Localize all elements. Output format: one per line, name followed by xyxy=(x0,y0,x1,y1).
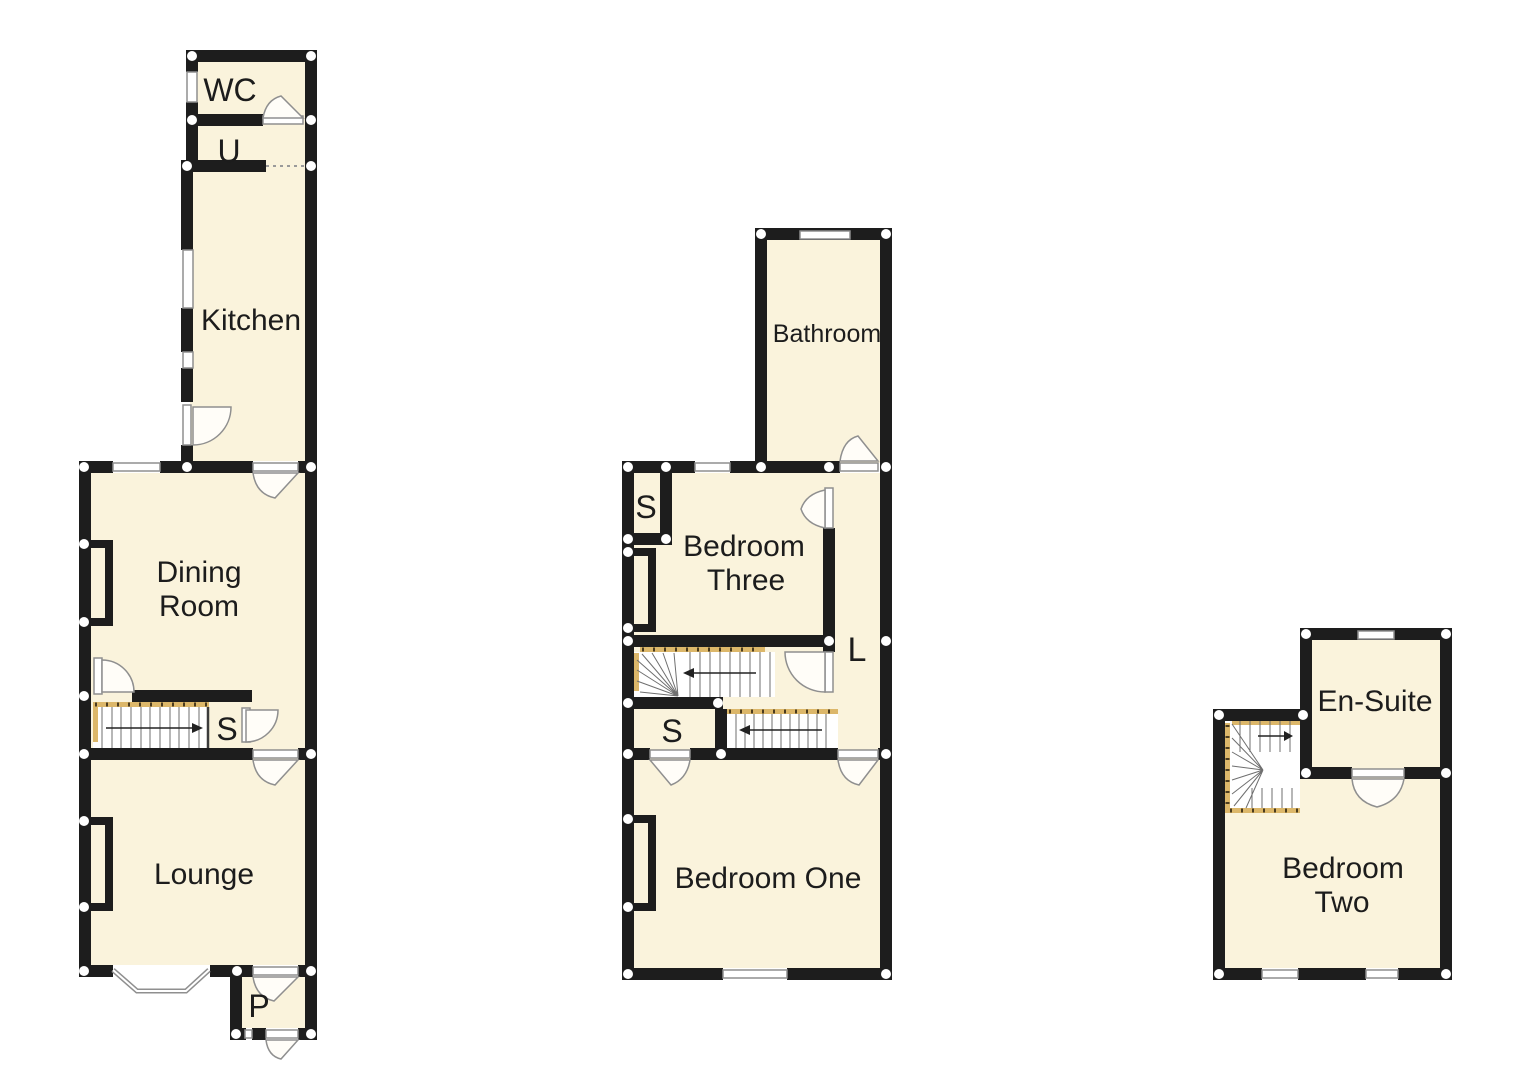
door-leaf xyxy=(253,967,298,975)
wall xyxy=(880,228,892,980)
wall xyxy=(186,114,263,126)
junction-dot xyxy=(756,462,766,472)
junction-dot xyxy=(232,966,242,976)
wall xyxy=(622,968,723,980)
bathroom-floor xyxy=(767,240,880,463)
room-label-dining-2: Room xyxy=(159,590,239,623)
first-floor-plan: Bathroom S Bedroom Three L S Bedroom One xyxy=(622,228,892,980)
window xyxy=(723,970,787,978)
door-leaf xyxy=(266,1030,298,1038)
window xyxy=(183,250,193,308)
wall xyxy=(181,308,193,352)
junction-dot xyxy=(79,966,89,976)
chimney-breast xyxy=(91,903,113,911)
door-leaf xyxy=(94,658,102,694)
junction-dot xyxy=(306,749,316,759)
chimney-breast xyxy=(634,624,656,632)
junction-dot xyxy=(1301,629,1311,639)
door-leaf xyxy=(183,405,191,445)
junction-dot xyxy=(79,462,89,472)
wall xyxy=(823,528,835,635)
wall xyxy=(305,50,317,1040)
door-leaf xyxy=(838,750,878,758)
door-swing-front xyxy=(266,1040,298,1059)
room-label-s-ground: S xyxy=(216,711,237,747)
window xyxy=(245,1030,252,1038)
ground-floor-plan: WC U Kitchen Dining Room S Lounge P xyxy=(79,50,317,1059)
chimney-breast xyxy=(648,815,656,911)
chimney-breast xyxy=(91,618,113,626)
junction-dot xyxy=(1298,710,1308,720)
wall xyxy=(690,748,838,760)
junction-dot xyxy=(881,636,891,646)
junction-dot xyxy=(623,969,633,979)
wall xyxy=(132,690,252,702)
junction-dot xyxy=(623,749,633,759)
junction-dot xyxy=(306,161,316,171)
chimney-breast xyxy=(105,817,113,911)
junction-dot xyxy=(824,462,834,472)
junction-dot xyxy=(306,51,316,61)
junction-dot xyxy=(79,816,89,826)
wall xyxy=(79,461,91,977)
junction-dot xyxy=(1214,969,1224,979)
bay-window xyxy=(113,970,209,991)
room-label-lounge: Lounge xyxy=(154,858,254,891)
junction-dot xyxy=(79,902,89,912)
junction-dot xyxy=(881,749,891,759)
door-leaf xyxy=(253,750,298,758)
room-label-u: U xyxy=(217,133,240,169)
wall xyxy=(181,160,193,250)
wall xyxy=(210,965,253,977)
window xyxy=(800,231,850,239)
junction-dot xyxy=(623,902,633,912)
room-label-ensuite: En-Suite xyxy=(1317,685,1432,718)
junction-dot xyxy=(187,51,197,61)
room-label-porch: P xyxy=(248,988,269,1024)
room-label-landing: L xyxy=(848,631,867,669)
wall xyxy=(622,635,835,647)
junction-dot xyxy=(1441,768,1451,778)
junction-dot xyxy=(623,814,633,824)
wall xyxy=(160,461,253,473)
door-leaf xyxy=(840,463,878,471)
ground-stairs xyxy=(93,702,209,748)
junction-dot xyxy=(661,534,671,544)
wall xyxy=(660,473,672,533)
junction-dot xyxy=(661,462,671,472)
window xyxy=(187,72,197,102)
junction-dot xyxy=(1301,768,1311,778)
wall xyxy=(186,102,198,114)
stair-handrail xyxy=(634,653,639,691)
junction-dot xyxy=(79,539,89,549)
second-floor-plan: En-Suite Bedroom Two xyxy=(1213,628,1452,980)
junction-dot xyxy=(79,617,89,627)
wall xyxy=(1300,628,1312,779)
stair-handrail xyxy=(727,709,838,714)
wall xyxy=(181,445,193,461)
wall xyxy=(755,228,767,473)
junction-dot xyxy=(231,1029,241,1039)
wall xyxy=(252,1028,266,1040)
room-label-bed2-2: Two xyxy=(1314,886,1369,919)
room-label-s-mid: S xyxy=(661,713,682,749)
junction-dot xyxy=(1441,969,1451,979)
room-label-bed1: Bedroom One xyxy=(675,862,862,895)
room-label-dining-1: Dining xyxy=(156,556,241,589)
junction-dot xyxy=(756,229,766,239)
junction-dot xyxy=(1214,710,1224,720)
junction-dot xyxy=(623,462,633,472)
door-leaf xyxy=(825,652,833,692)
wall xyxy=(622,697,723,709)
floorplan-canvas: WC U Kitchen Dining Room S Lounge P xyxy=(0,0,1523,1080)
wall xyxy=(1440,628,1452,980)
window xyxy=(1262,970,1298,978)
chimney-breast xyxy=(648,548,656,632)
junction-dot xyxy=(306,115,316,125)
door-leaf xyxy=(253,463,298,471)
window xyxy=(1366,970,1398,978)
junction-dot xyxy=(79,749,89,759)
junction-dot xyxy=(881,969,891,979)
stair-handrail xyxy=(1225,808,1300,813)
junction-dot xyxy=(623,698,633,708)
junction-dot xyxy=(306,966,316,976)
junction-dot xyxy=(306,462,316,472)
junction-dot xyxy=(716,749,726,759)
window xyxy=(695,463,730,471)
junction-dot xyxy=(306,1029,316,1039)
junction-dot xyxy=(881,462,891,472)
junction-dot xyxy=(623,547,633,557)
junction-dot xyxy=(187,115,197,125)
room-label-kitchen: Kitchen xyxy=(201,304,301,337)
junction-dot xyxy=(713,698,723,708)
wall xyxy=(1298,968,1366,980)
chimney-breast xyxy=(634,903,656,911)
room-label-bed3-2: Three xyxy=(707,564,785,597)
stair-handrail xyxy=(640,647,765,652)
chimney-breast xyxy=(105,540,113,626)
wall xyxy=(186,50,317,62)
wall xyxy=(787,968,892,980)
room-label-bed3-1: Bedroom xyxy=(683,530,805,563)
wall xyxy=(186,126,198,160)
door-leaf xyxy=(650,750,690,758)
junction-dot xyxy=(623,636,633,646)
room-label-s-top: S xyxy=(635,489,656,525)
wall xyxy=(79,748,253,760)
room-label-bathroom: Bathroom xyxy=(773,320,881,348)
window xyxy=(183,352,193,368)
window xyxy=(113,463,160,471)
junction-dot xyxy=(182,161,192,171)
door-leaf xyxy=(1352,769,1404,777)
wall xyxy=(1213,709,1225,980)
junction-dot xyxy=(824,636,834,646)
door-leaf xyxy=(825,488,833,528)
junction-dot xyxy=(1441,629,1451,639)
junction-dot xyxy=(623,534,633,544)
junction-dot xyxy=(79,691,89,701)
junction-dot xyxy=(182,462,192,472)
stair-handrail xyxy=(93,707,98,742)
room-label-wc: WC xyxy=(203,72,256,108)
wall xyxy=(1213,709,1300,721)
room-label-bed2-1: Bedroom xyxy=(1282,852,1404,885)
junction-dot xyxy=(623,623,633,633)
floorplan-image: WC U Kitchen Dining Room S Lounge P xyxy=(0,0,1523,1080)
second-stairs xyxy=(1225,721,1300,813)
window xyxy=(1358,631,1394,639)
junction-dot xyxy=(881,229,891,239)
wall xyxy=(181,368,193,402)
